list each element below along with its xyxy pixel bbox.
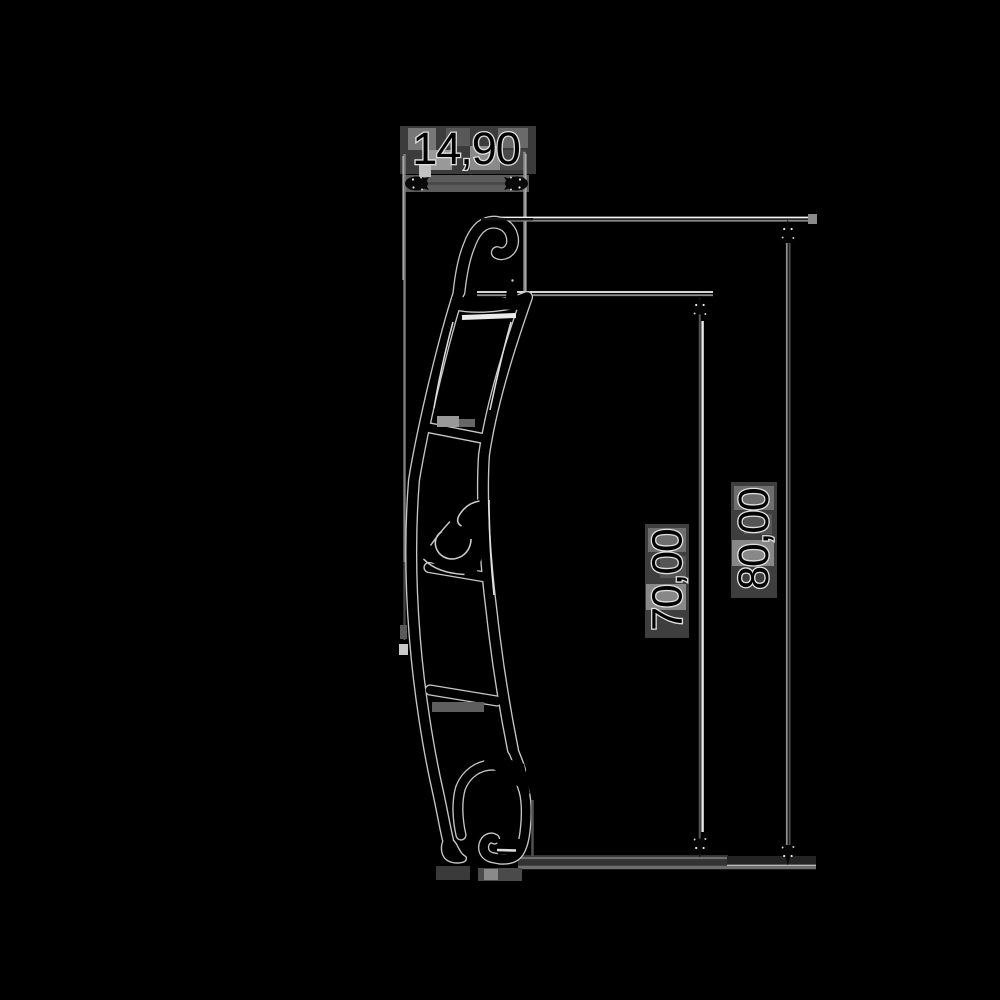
svg-text:80,00: 80,00 bbox=[731, 488, 778, 589]
svg-text:70,00: 70,00 bbox=[645, 529, 692, 630]
svg-text:14,90: 14,90 bbox=[412, 123, 520, 174]
